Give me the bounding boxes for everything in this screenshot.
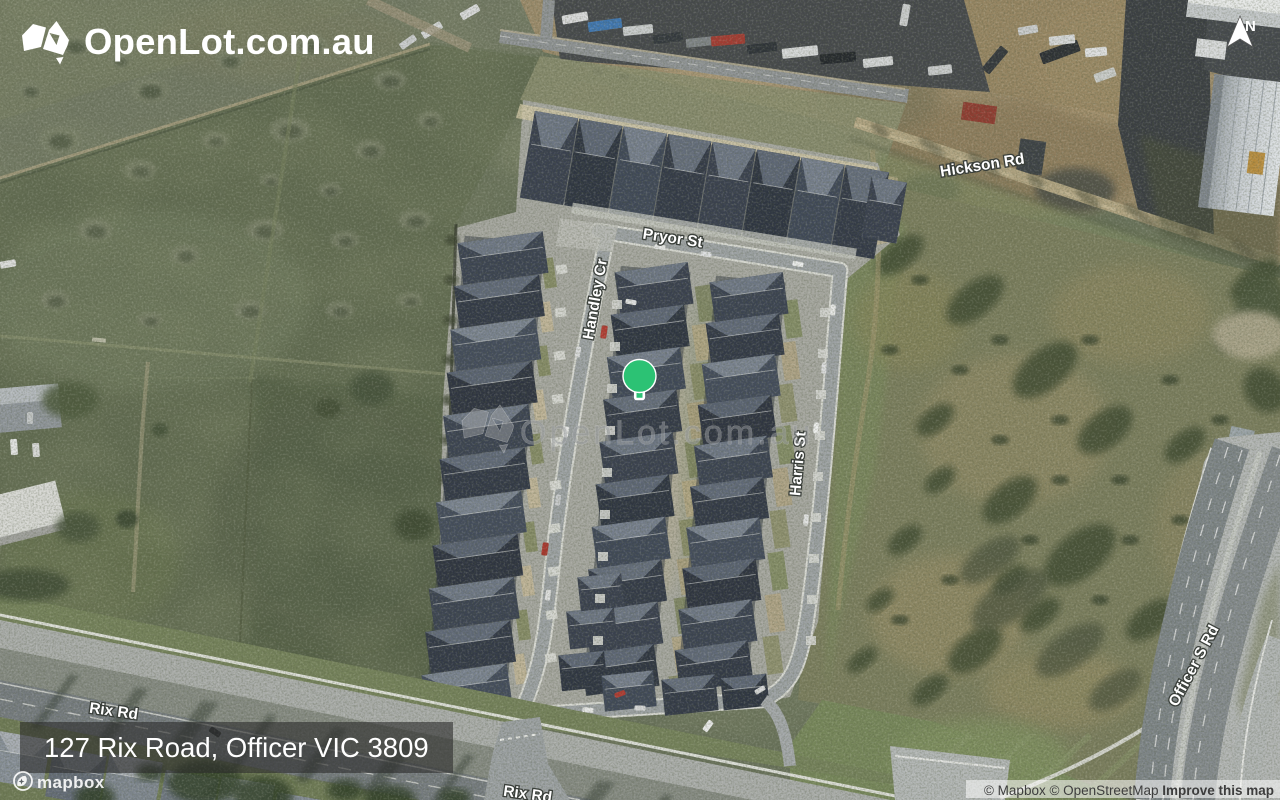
svg-text:127 Rix Road, Officer VIC 3809: 127 Rix Road, Officer VIC 3809 (44, 732, 429, 763)
svg-text:mapbox: mapbox (37, 773, 105, 792)
svg-text:OpenLot.com.au: OpenLot.com.au (520, 414, 813, 452)
svg-text:N: N (1245, 18, 1256, 35)
svg-text:OpenLot.com.au: OpenLot.com.au (84, 21, 375, 62)
svg-text:© Mapbox © OpenStreetMap Impro: © Mapbox © OpenStreetMap Improve this ma… (984, 783, 1274, 798)
